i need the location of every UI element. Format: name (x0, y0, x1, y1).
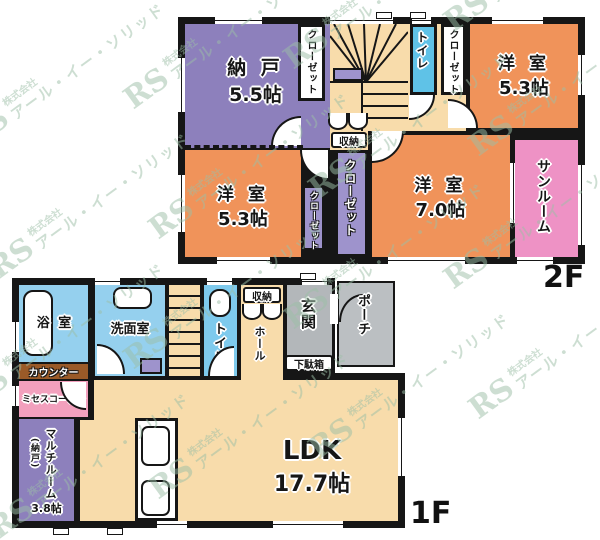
shuno-label-1f: 収納 (243, 287, 281, 303)
double-door (333, 81, 363, 97)
sunroom-label: サンルーム (536, 159, 550, 234)
door-opening (330, 294, 338, 324)
roof-vent (107, 528, 123, 535)
ldk-label: LDK 17.7帖 (247, 436, 377, 498)
watermark-company: 株式会社 (26, 121, 183, 240)
porch-label: ポーチ (356, 294, 369, 336)
window (578, 165, 585, 245)
window (517, 257, 553, 264)
toilet-fixture (209, 289, 231, 317)
kitchen-sink (141, 426, 170, 466)
room-name: 洋 室 (217, 180, 269, 205)
window (12, 386, 19, 406)
roof-vent (53, 528, 69, 535)
bathroom-label: 浴 室 (24, 312, 86, 331)
room-size: 7.0帖 (416, 196, 466, 222)
door-arc (300, 150, 328, 180)
stairs-1f (169, 285, 200, 376)
room-name: 洋 室 (498, 49, 550, 74)
window (95, 278, 120, 285)
genkan-label: 玄関 (300, 298, 315, 330)
floor2-plan: 収納 納 戸 5.5帖 クローゼット トイレ クローゼット 洋 室 (178, 17, 585, 264)
shuno-text: 収納 (339, 133, 359, 148)
closet-label: クローゼット (344, 159, 356, 237)
watermark-name: アール・イー・ソリッド (488, 0, 600, 7)
watermark-logo: RS (462, 371, 520, 427)
multi-room-size: 3.8帖 (19, 500, 74, 516)
window (207, 278, 232, 285)
watermark-name: アール・イー・ソリッド (33, 130, 194, 253)
window (398, 418, 405, 476)
watermark-logo: RS (0, 101, 16, 157)
nando-size: 5.5帖 (229, 80, 282, 107)
kitchen-stove (141, 480, 170, 516)
getabako-text: 下駄箱 (294, 356, 324, 371)
multi-room-sub: (納戸) (29, 438, 38, 468)
watermark: RS株式会社アール・イー・ソリッド (0, 0, 170, 157)
roof-vent (376, 12, 392, 19)
room-size: 5.3帖 (499, 74, 549, 100)
shuno-text: 収納 (252, 288, 272, 303)
counter: カウンター (19, 364, 88, 379)
ldk-size: 17.7帖 (274, 466, 350, 498)
washroom-label: 洗面室 (96, 318, 164, 337)
closet-label: クローゼット (447, 29, 457, 95)
roof-vent (300, 273, 316, 280)
floor-plan-image: 収納 納 戸 5.5帖 クローゼット トイレ クローゼット 洋 室 (0, 0, 600, 540)
watermark-logo: RS (117, 61, 175, 117)
window (273, 521, 343, 528)
washer-pan (140, 358, 162, 374)
yoshitsu-r-label: 洋 室 7.0帖 (383, 165, 498, 227)
toilet-label-2f: トイレ (416, 31, 428, 70)
nando-label: 納 戸 5.5帖 (193, 42, 318, 117)
roof-vent (410, 12, 426, 19)
counter-label: カウンター (29, 364, 79, 379)
yoshitsu-bl-label: 洋 室 5.3帖 (188, 175, 298, 235)
double-door (328, 113, 368, 130)
closet-label: クローゼット (308, 191, 317, 251)
window (217, 257, 270, 264)
getabako-label: 下駄箱 (285, 355, 333, 371)
watermark-name: アール・イー・ソリッド (8, 0, 169, 123)
stair-closet (333, 68, 363, 81)
floor1-plan: カウンター ミセスコーナー マルチルーム (納戸) 3.8帖 トイレ 収納 ホー… (12, 278, 405, 528)
hall-label: ホール (254, 326, 265, 362)
room-name: 洋 室 (415, 171, 467, 196)
window (178, 58, 185, 112)
watermark-company: 株式会社 (1, 0, 158, 110)
double-door (242, 304, 282, 320)
window (578, 55, 585, 95)
shuno-label-2f: 収納 (331, 132, 367, 148)
nando-name: 納 戸 (227, 53, 284, 80)
multi-room-name: マルチルーム (45, 428, 56, 500)
ldk-name: LDK (283, 436, 341, 466)
window (178, 175, 185, 232)
window (12, 322, 19, 352)
window (492, 17, 543, 24)
floor1-label: 1F (410, 496, 451, 531)
floor2-label: 2F (543, 260, 584, 295)
open-wall-dashed (185, 145, 303, 148)
window (510, 163, 515, 223)
sink (113, 287, 152, 309)
window (157, 521, 187, 528)
closet-label: クローゼット (305, 29, 315, 95)
window (215, 17, 262, 24)
watermark: RS株式会社アール・イー・ソリッド (0, 118, 195, 286)
room-size: 5.3帖 (218, 205, 268, 231)
window (388, 257, 465, 264)
yoshitsu-tr-label: 洋 室 5.3帖 (473, 39, 575, 109)
